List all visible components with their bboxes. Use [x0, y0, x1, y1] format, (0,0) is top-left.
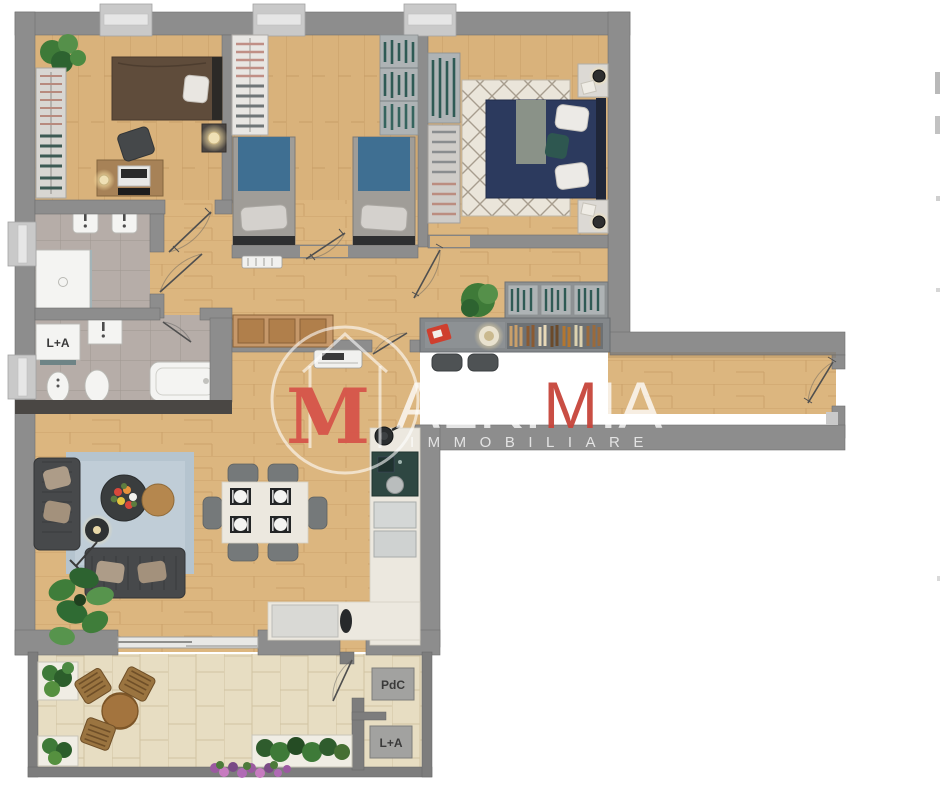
- lamp: [593, 216, 605, 228]
- edge-artifact: [936, 288, 940, 292]
- blue-runner: [358, 137, 410, 191]
- alcove-left-wall: [352, 698, 364, 770]
- headboard: [596, 98, 606, 200]
- left-wall: [15, 12, 35, 655]
- alcove-divider: [352, 712, 386, 720]
- pillow: [554, 104, 589, 132]
- wardrobe: [36, 68, 66, 198]
- sofa-vertical: [34, 458, 80, 550]
- hedge-planter: [252, 735, 352, 767]
- hall-plant-leaf: [461, 299, 479, 317]
- heat-pump-unit: PdC: [372, 668, 414, 700]
- hall-wardrobe: [505, 282, 608, 318]
- edge-artifact: [935, 72, 940, 94]
- wall-bath1-bath2: [35, 308, 160, 320]
- edge-artifacts: [935, 72, 940, 581]
- window-top-1: [100, 4, 152, 36]
- planter-box-top: [38, 662, 78, 700]
- dining-chair-top-1: [228, 464, 258, 484]
- terrace-laundry-label: L+A: [379, 736, 402, 750]
- pillow: [240, 204, 288, 231]
- boiler-radiator: [314, 350, 362, 368]
- terrace-right-wall: [422, 652, 432, 777]
- headboard: [212, 57, 222, 120]
- footboard: [233, 236, 295, 245]
- desk: [93, 160, 163, 196]
- window-left-1: [8, 222, 36, 266]
- coffee-table: [101, 475, 147, 521]
- place-setting: [230, 488, 251, 505]
- corridor-top-wall: [610, 332, 845, 355]
- edge-artifact: [935, 116, 940, 134]
- nightstand-bottom: [578, 200, 609, 233]
- book: [581, 203, 596, 216]
- corridor-shadow: [608, 352, 836, 358]
- toilet-dot: [57, 385, 60, 388]
- alcove-jamb: [340, 652, 354, 664]
- floor-plan: L+A: [0, 0, 940, 788]
- brand-tagline: IMMOBILIARE: [410, 434, 657, 451]
- pillow: [95, 560, 126, 584]
- dining-chair-right: [308, 497, 327, 529]
- window-left-2: [8, 355, 36, 399]
- bath1-right-wall: [150, 214, 164, 252]
- dishwasher: [374, 531, 416, 557]
- window-top-3: [404, 4, 456, 36]
- terrace-left-wall: [28, 652, 38, 777]
- wardrobe-glass: [428, 53, 460, 123]
- sink-unit: [372, 452, 418, 496]
- heat-pump-label: PdC: [381, 678, 405, 692]
- hanging-clothes: [40, 76, 62, 124]
- place-setting: [230, 516, 251, 533]
- dining-chair-left: [203, 497, 222, 529]
- kitchen-base-unit: [272, 605, 338, 637]
- planter-box-bottom: [38, 736, 78, 766]
- lamp: [208, 132, 220, 144]
- laptop-screen: [121, 169, 147, 178]
- wall-bedroom1-twin: [222, 35, 232, 203]
- double-bed: [486, 98, 606, 200]
- bed-runner: [516, 100, 546, 164]
- flush-dot: [84, 224, 87, 227]
- side-table: [142, 484, 174, 516]
- bath2-bottom-wall: [15, 400, 232, 414]
- table-lamp: [484, 331, 494, 341]
- wardrobe-right: [380, 35, 418, 135]
- brand-name-pre: ALKI: [396, 368, 543, 442]
- accent-pillow: [544, 132, 570, 159]
- brand-name: ALKIMIA: [396, 368, 663, 442]
- floor-plan-page: L+A: [0, 0, 940, 788]
- book: [581, 80, 596, 94]
- brand-monogram: M: [286, 372, 370, 461]
- brand-name-post: IA: [599, 368, 663, 442]
- master-bedroom: [428, 53, 609, 233]
- double-bed: [112, 57, 222, 120]
- single-bed-2: [353, 137, 415, 245]
- bathtub-drain: [203, 378, 209, 384]
- laptop-keyboard: [118, 188, 150, 195]
- pillow: [137, 560, 168, 584]
- single-bed-1: [233, 137, 295, 245]
- wardrobe-left: [232, 35, 268, 135]
- pillow: [554, 162, 589, 190]
- tap-dot: [123, 224, 126, 227]
- tap-dot: [102, 334, 105, 337]
- footboard: [353, 236, 415, 245]
- radiator: [242, 256, 282, 268]
- console-bench: [420, 318, 610, 352]
- master-door-gap: [430, 236, 470, 247]
- lamp: [593, 70, 605, 82]
- wall-twin-master: [418, 35, 428, 247]
- entry-threshold: [826, 412, 838, 425]
- oven: [374, 502, 416, 528]
- edge-artifact: [936, 196, 940, 201]
- desk-lamp: [99, 175, 109, 185]
- boiler-label-badge: [322, 353, 344, 360]
- bookshelf: [507, 323, 603, 349]
- place-setting: [270, 488, 291, 505]
- wardrobe-open: [428, 125, 460, 223]
- nightstand: [200, 124, 228, 152]
- wall-stub: [215, 200, 232, 214]
- brand-name-accent: M: [543, 368, 599, 442]
- pillow: [183, 75, 210, 103]
- dining-chair-top-2: [268, 464, 298, 484]
- faucet-base: [387, 477, 404, 494]
- tap-glyph: [102, 322, 105, 331]
- shower-tray: [36, 250, 90, 314]
- blue-runner: [238, 137, 290, 191]
- nightstand-top: [578, 64, 609, 97]
- dining-chair-bottom-1: [228, 541, 258, 561]
- bath2-right-wall: [210, 318, 232, 402]
- terrace-laundry-unit: L+A: [370, 726, 412, 758]
- toilet-dot: [57, 379, 60, 382]
- wall-bedroom1-bath1: [35, 200, 165, 214]
- place-setting: [270, 516, 291, 533]
- washer-dryer-label: L+A: [46, 336, 69, 350]
- dining-chair-bottom-2: [268, 541, 298, 561]
- sliding-door: [118, 637, 258, 648]
- right-wall-upper: [608, 12, 630, 338]
- bidet: [85, 370, 109, 402]
- vase: [340, 609, 352, 633]
- hall-plant-leaf: [478, 284, 498, 304]
- window-top-2: [253, 4, 305, 36]
- washer-top: [40, 360, 76, 365]
- pillow: [360, 204, 408, 231]
